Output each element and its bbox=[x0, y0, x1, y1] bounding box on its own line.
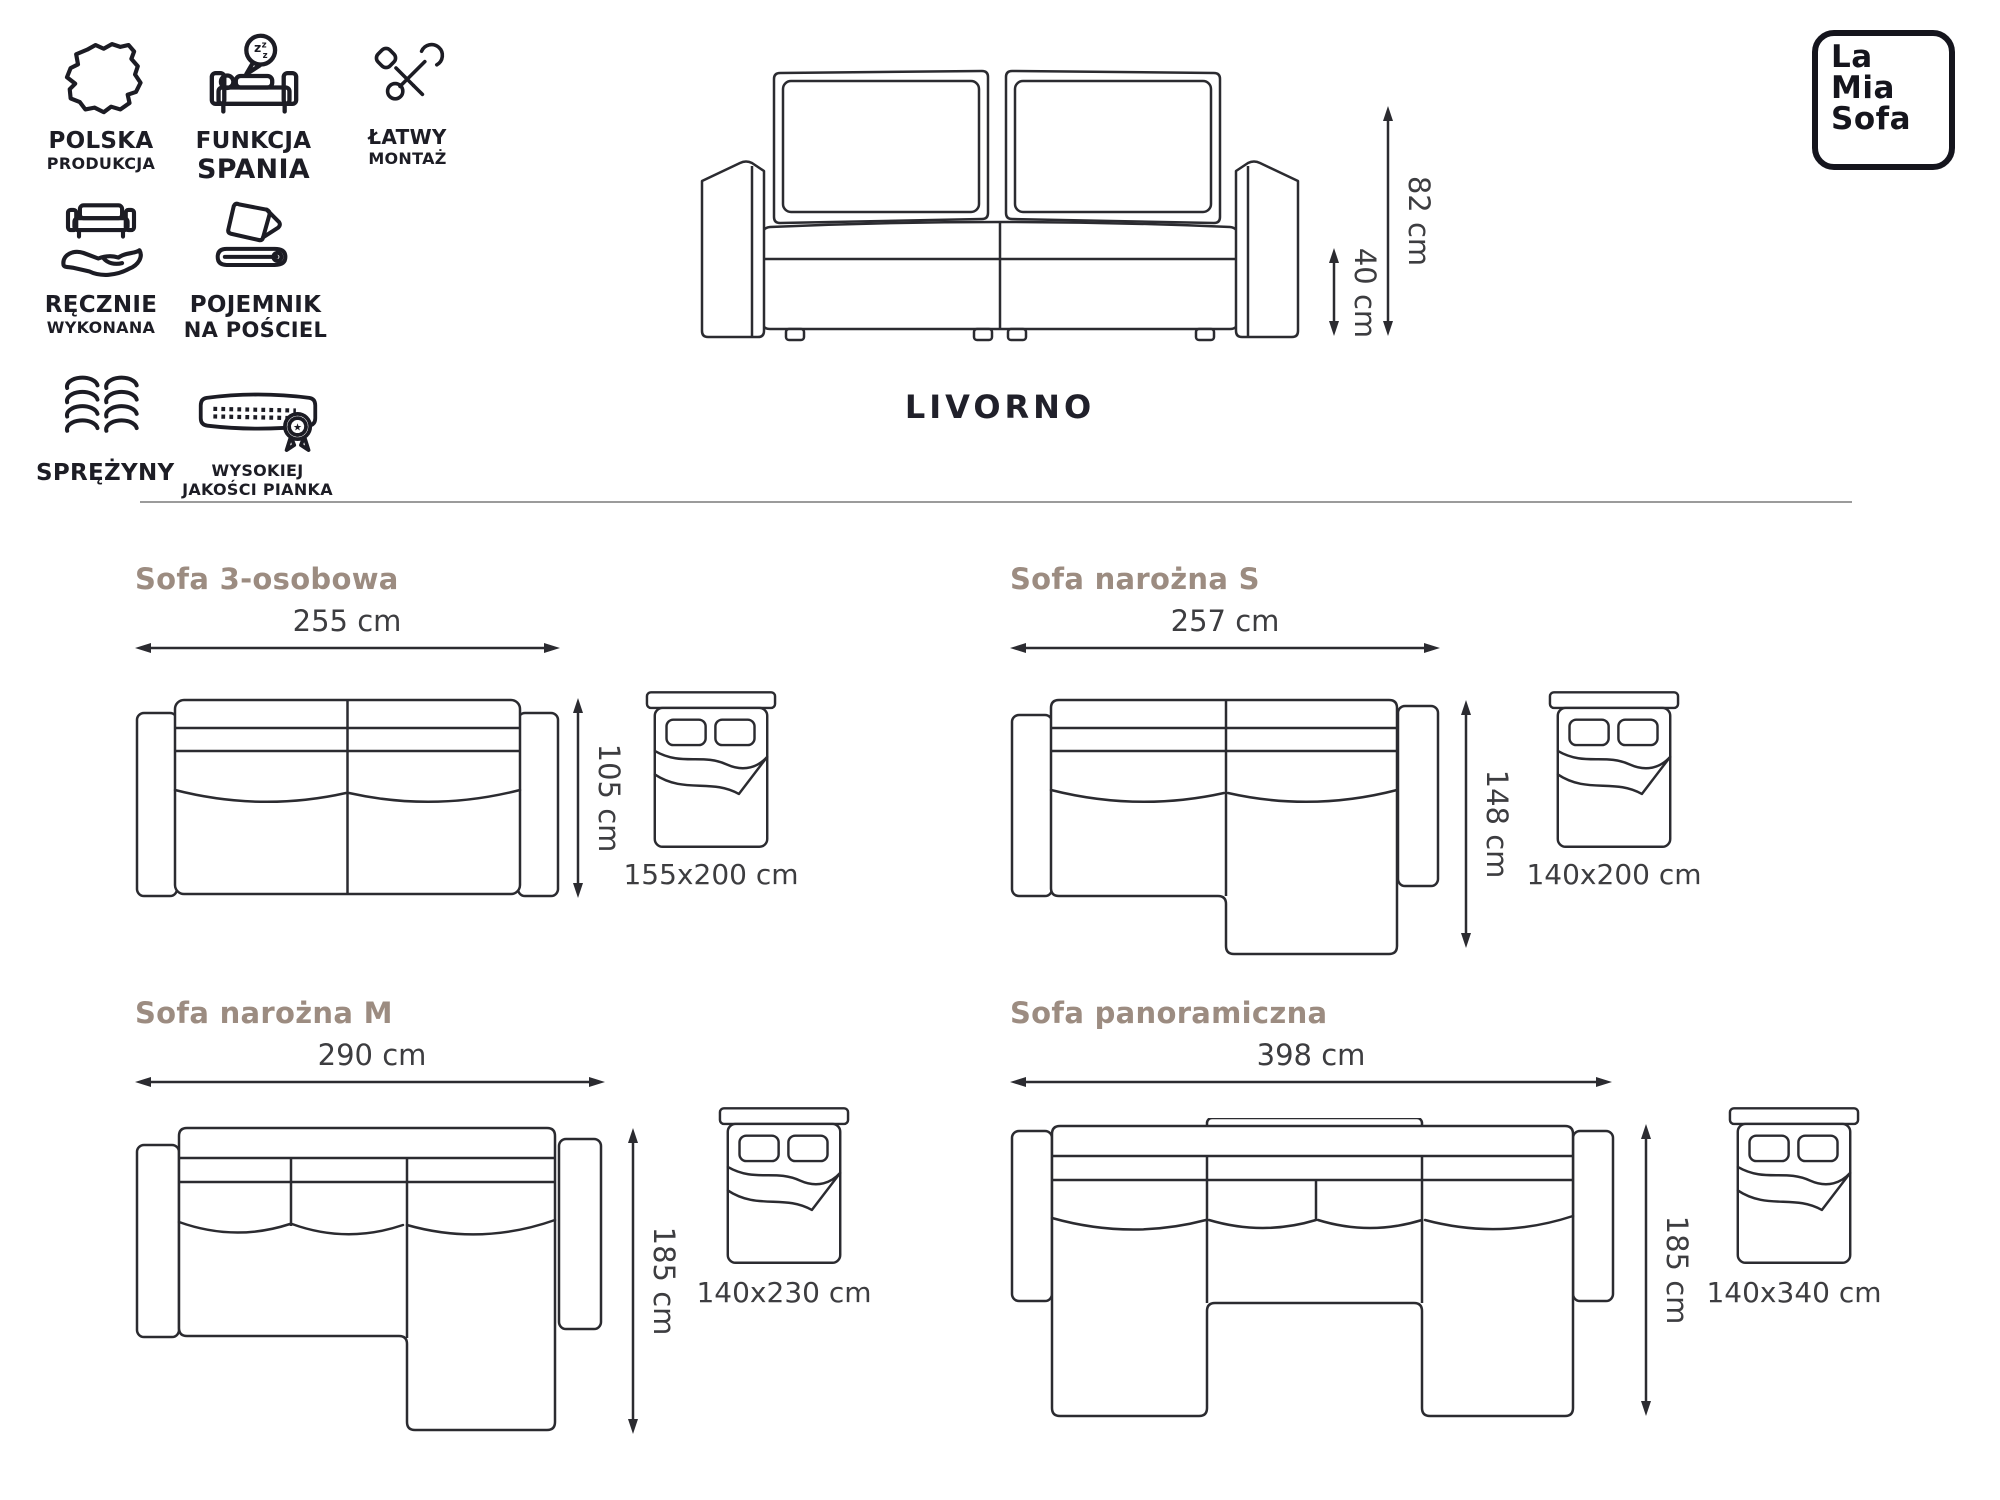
feature-pojemnik-na-posciel: POJEMNIK NA POŚCIEL bbox=[178, 192, 333, 344]
feature-label: ŁATWY bbox=[350, 126, 465, 149]
feature-recznie-wykonana: RĘCZNIE WYKONANA bbox=[36, 196, 166, 338]
overall-height-label: 82 cm bbox=[1402, 176, 1436, 266]
variant-title: Sofa panoramiczna bbox=[1010, 996, 1327, 1030]
variant-title: Sofa narożna M bbox=[135, 996, 393, 1030]
bed-size-icon bbox=[1728, 1106, 1860, 1268]
svg-text:z: z bbox=[261, 40, 266, 50]
variant-title: Sofa narożna S bbox=[1010, 562, 1260, 596]
svg-text:z: z bbox=[262, 51, 267, 61]
overall-height-arrow bbox=[1380, 106, 1396, 336]
bedding-storage-icon bbox=[178, 192, 333, 286]
poland-map-icon bbox=[36, 34, 166, 122]
feature-label: WYSOKIEJ bbox=[170, 462, 345, 480]
svg-text:★: ★ bbox=[293, 423, 302, 434]
feature-polska-produkcja: POLSKA PRODUKCJA bbox=[36, 34, 166, 174]
feature-sprezyny: SPRĘŻYNY bbox=[36, 366, 166, 486]
bed-size-label: 140x200 cm bbox=[1526, 858, 1701, 891]
feature-sublabel: MONTAŻ bbox=[350, 149, 465, 168]
depth-arrow bbox=[1638, 1124, 1654, 1416]
feature-label: POLSKA bbox=[36, 128, 166, 154]
bed-size-label: 140x340 cm bbox=[1706, 1276, 1881, 1309]
width-arrow bbox=[1010, 1074, 1612, 1090]
product-spec-sheet: POLSKA PRODUKCJA z z z FUNKCJA SPANIA bbox=[0, 0, 2000, 1500]
section-divider bbox=[140, 501, 1852, 503]
easy-assembly-icon bbox=[350, 36, 465, 120]
width-arrow bbox=[135, 1074, 605, 1090]
sleep-function-icon: z z z bbox=[176, 30, 331, 122]
feature-latwy-montaz: ŁATWY MONTAŻ bbox=[350, 36, 465, 168]
variant-width-label: 290 cm bbox=[318, 1038, 427, 1072]
feature-label: FUNKCJA bbox=[176, 128, 331, 154]
sofa-top-view-drawing bbox=[135, 698, 560, 898]
sofa-top-view-drawing bbox=[1010, 1118, 1615, 1423]
bed-size-icon bbox=[1548, 690, 1680, 852]
feature-sublabel: JAKOŚCI PIANKA bbox=[170, 480, 345, 499]
depth-arrow bbox=[625, 1128, 641, 1434]
feature-sublabel: SPANIA bbox=[176, 154, 331, 186]
feature-sublabel: PRODUKCJA bbox=[36, 154, 166, 173]
bed-size-label: 140x230 cm bbox=[696, 1276, 871, 1309]
sofa-top-view-drawing bbox=[1010, 698, 1440, 960]
bed-size-icon bbox=[645, 690, 777, 852]
brand-logo: La Mia Sofa bbox=[1812, 30, 1955, 170]
springs-icon bbox=[36, 366, 166, 454]
seat-height-arrow bbox=[1326, 248, 1342, 336]
feature-label: RĘCZNIE bbox=[36, 292, 166, 318]
feature-sublabel: NA POŚCIEL bbox=[178, 318, 333, 343]
bed-size-label: 155x200 cm bbox=[623, 858, 798, 891]
feature-label: SPRĘŻYNY bbox=[36, 460, 166, 486]
brand-logo-line: Sofa bbox=[1831, 104, 1949, 135]
feature-sublabel: WYKONANA bbox=[36, 318, 166, 337]
variant-width-label: 255 cm bbox=[293, 604, 402, 638]
width-arrow bbox=[1010, 640, 1440, 656]
variant-depth-label: 148 cm bbox=[1480, 770, 1514, 879]
variant-depth-label: 185 cm bbox=[647, 1227, 681, 1336]
sofa-top-view-drawing bbox=[135, 1126, 603, 1436]
depth-arrow bbox=[570, 698, 586, 898]
feature-wysokiej-jakosci-pianka: ★ WYSOKIEJ JAKOŚCI PIANKA bbox=[170, 372, 345, 500]
variant-width-label: 257 cm bbox=[1171, 604, 1280, 638]
product-name: LIVORNO bbox=[690, 388, 1310, 426]
svg-text:z: z bbox=[254, 40, 261, 55]
variant-depth-label: 185 cm bbox=[1660, 1216, 1694, 1325]
variant-width-label: 398 cm bbox=[1257, 1038, 1366, 1072]
quality-foam-icon: ★ bbox=[170, 372, 345, 456]
variant-depth-label: 105 cm bbox=[592, 744, 626, 853]
brand-logo-line: La bbox=[1831, 42, 1949, 73]
sofa-front-view-drawing bbox=[690, 65, 1310, 355]
depth-arrow bbox=[1458, 700, 1474, 948]
width-arrow bbox=[135, 640, 560, 656]
variant-title: Sofa 3-osobowa bbox=[135, 562, 399, 596]
seat-height-label: 40 cm bbox=[1348, 248, 1382, 338]
brand-logo-line: Mia bbox=[1831, 73, 1949, 104]
feature-funkcja-spania: z z z FUNKCJA SPANIA bbox=[176, 30, 331, 187]
handmade-icon bbox=[36, 196, 166, 286]
feature-label: POJEMNIK bbox=[178, 292, 333, 318]
bed-size-icon bbox=[718, 1106, 850, 1268]
